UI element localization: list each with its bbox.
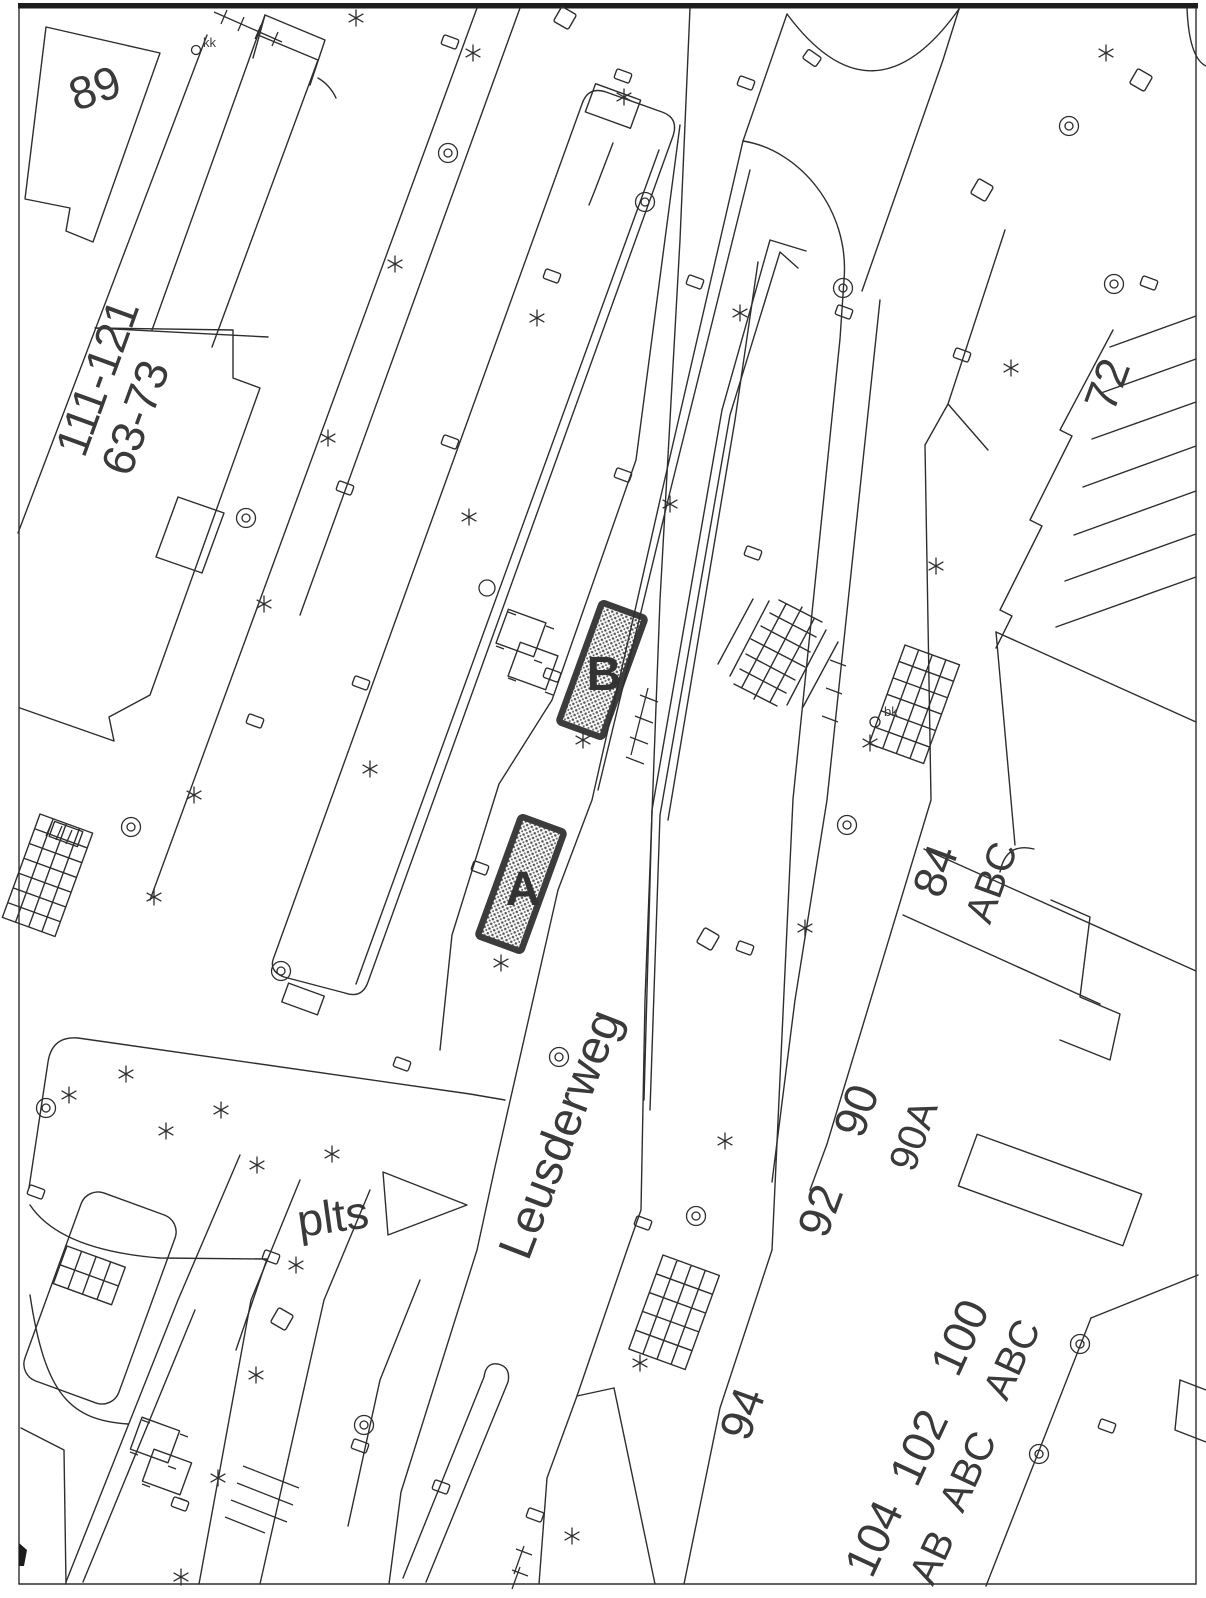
svg-text:89: 89 (62, 55, 127, 121)
svg-text:Leusderweg: Leusderweg (489, 1003, 632, 1266)
svg-text:84: 84 (902, 838, 968, 904)
svg-text:bk: bk (884, 704, 898, 719)
svg-text:72: 72 (1074, 352, 1140, 418)
svg-text:90: 90 (823, 1078, 889, 1144)
svg-text:90A: 90A (881, 1094, 947, 1176)
svg-text:AB: AB (901, 1524, 963, 1591)
svg-text:plts: plts (294, 1185, 372, 1246)
svg-text:kk: kk (203, 35, 217, 50)
svg-text:A: A (506, 863, 541, 916)
svg-text:ABC: ABC (957, 836, 1026, 928)
svg-text:94: 94 (709, 1381, 775, 1447)
svg-text:92: 92 (787, 1178, 853, 1244)
